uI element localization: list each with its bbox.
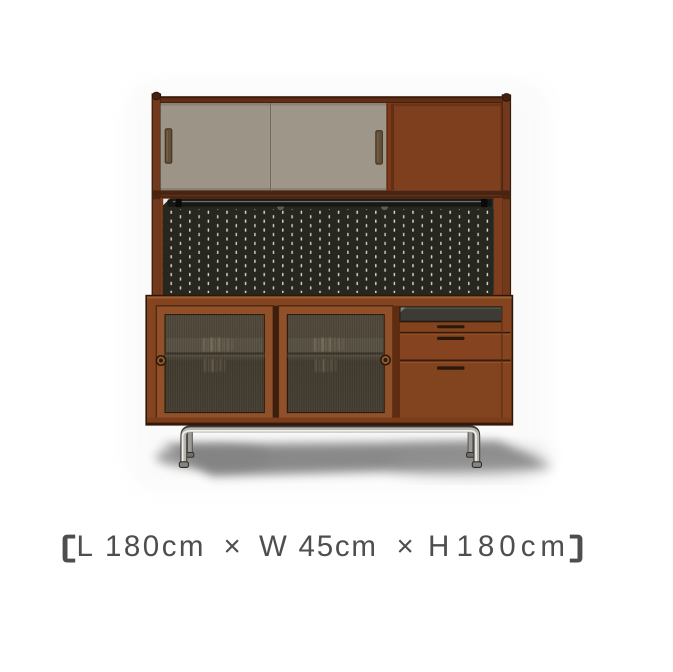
svg-text:180cm: 180cm xyxy=(457,530,566,563)
svg-text:×: × xyxy=(397,530,414,563)
svg-text:×: × xyxy=(224,530,241,563)
svg-text:L 180cm: L 180cm xyxy=(77,530,204,563)
svg-text:W 45cm: W 45cm xyxy=(259,530,376,563)
svg-text:H: H xyxy=(428,530,449,563)
